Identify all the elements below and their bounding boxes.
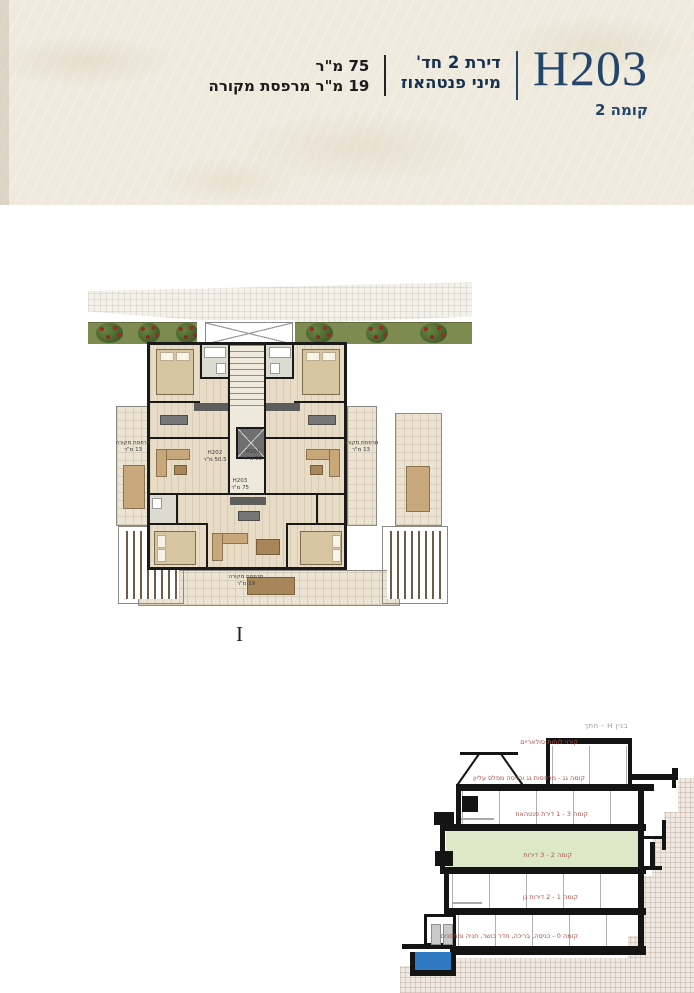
parapet-right xyxy=(672,768,676,788)
unit-code: H203 xyxy=(533,44,648,92)
unit-label-h201: H201 50 מ"ר xyxy=(238,449,268,462)
kitchen-counter xyxy=(194,403,228,411)
label-floor-2: קומה 2 - 3 דירות xyxy=(523,851,572,859)
unit-block: H203 קומה 2 xyxy=(533,44,648,119)
unit-area-text: 75 מ"ר xyxy=(225,485,255,492)
bed xyxy=(300,531,342,565)
unit-code-text: H201 xyxy=(238,449,268,456)
pool xyxy=(410,952,456,976)
toilet xyxy=(216,363,226,374)
pillow xyxy=(332,549,341,562)
paper-edge-shadow xyxy=(0,0,9,205)
building-section: בנין H - חתך קירוי לוחות סולאריים קומה ג… xyxy=(400,718,694,993)
floor-slab xyxy=(444,908,646,915)
balcony-label-left: מרפסת מקורה 13 מ"ר xyxy=(114,440,152,453)
balcony-label-line: 13 מ"ר xyxy=(342,447,380,454)
shrub-icon xyxy=(306,323,333,343)
label-floor-1: קומה 1 - 2 דירות גן xyxy=(523,893,578,901)
toilet xyxy=(270,363,280,374)
sofa xyxy=(156,449,167,477)
title-band: H203 קומה 2 דירת 2 חד' מיני פנטהאוז 75 מ… xyxy=(0,0,694,205)
cut-mass xyxy=(462,796,478,812)
kitchen-counter xyxy=(230,497,266,505)
unit-area-text: 50 מ"ר xyxy=(238,456,268,463)
bathroom xyxy=(266,345,292,377)
header-divider-dark xyxy=(384,55,386,96)
wall xyxy=(266,437,344,439)
pillow xyxy=(157,549,166,562)
railing xyxy=(452,902,482,904)
apartment-type-line1: דירת 2 חד' xyxy=(401,53,501,73)
pool-room xyxy=(424,914,456,946)
apartment-type-line2: מיני פנטהאוז xyxy=(401,73,501,93)
size-line1: 75 מ"ר xyxy=(209,57,370,77)
label-solar-roof: קירוי לוחות סולאריים xyxy=(520,738,578,746)
unit-label-h203: H203 75 מ"ר xyxy=(225,478,255,491)
unit-area-text: 50.5 מ"ר xyxy=(200,457,230,464)
kitchen-island xyxy=(308,415,336,425)
pillow xyxy=(157,535,166,548)
bathtub xyxy=(204,347,226,358)
pillow xyxy=(306,352,320,361)
bed xyxy=(156,349,194,395)
wall xyxy=(628,744,632,788)
coffee-table xyxy=(310,465,323,475)
unit-code-text: H203 xyxy=(225,478,255,485)
bathroom xyxy=(150,495,176,523)
wall xyxy=(150,523,208,525)
balcony-label-right: מרפסת מקורה 13 מ"ר xyxy=(342,440,380,453)
interior-lines xyxy=(458,915,636,946)
shrub-icon xyxy=(138,323,160,343)
ground-slab xyxy=(450,946,646,955)
pillow xyxy=(322,352,336,361)
cut-mass xyxy=(434,812,454,825)
wall xyxy=(206,525,208,567)
wall xyxy=(176,495,178,525)
cut-mass xyxy=(435,851,453,866)
size-line2: 19 מ"ר מרפסת מקורה xyxy=(209,77,370,97)
wall xyxy=(316,495,318,525)
bed xyxy=(154,531,196,565)
sofa xyxy=(212,533,223,561)
shrub-icon xyxy=(366,323,388,343)
shrub-icon xyxy=(176,323,198,343)
lounge-chair xyxy=(123,465,145,509)
kitchen-island xyxy=(238,511,260,521)
step-slab xyxy=(644,866,662,870)
balcony-label-line: 19 מ"ר xyxy=(216,581,276,588)
pergola-right xyxy=(382,526,448,604)
balcony-right xyxy=(347,406,377,526)
floor-label: קומה 2 xyxy=(595,101,648,119)
pillow xyxy=(332,535,341,548)
bathtub xyxy=(269,347,291,358)
wall xyxy=(286,523,344,525)
kitchen-island xyxy=(160,415,188,425)
wall xyxy=(456,784,461,831)
section-title: בנין H - חתך xyxy=(584,722,628,730)
kitchen-counter xyxy=(266,403,300,411)
balcony-label-line: מרפסת מקורה xyxy=(114,440,152,447)
balcony-label-line: מרפסת מקורה xyxy=(216,574,276,581)
apartment-sizes: 75 מ"ר 19 מ"ר מרפסת מקורה xyxy=(209,57,370,97)
lounge-chair xyxy=(406,466,430,512)
wall xyxy=(150,493,344,495)
coffee-table xyxy=(174,465,187,475)
shrub-icon xyxy=(96,323,123,343)
unit-label-h202: H202 50.5 מ"ר xyxy=(200,450,230,463)
balcony-label-line: מרפסת מקורה xyxy=(342,440,380,447)
toilet xyxy=(152,498,162,509)
floor-plan: H202 50.5 מ"ר H201 50 מ"ר H203 75 מ"ר מר… xyxy=(88,278,472,612)
dining-table xyxy=(256,539,280,555)
step-wall xyxy=(662,820,666,850)
label-floor-3: קומה 3 - 1 דירת פנטהאוז xyxy=(516,810,588,818)
balcony-label-line: 13 מ"ר xyxy=(114,447,152,454)
bathroom xyxy=(202,345,228,377)
wall xyxy=(150,401,200,403)
pillow xyxy=(176,352,190,361)
sofa xyxy=(329,449,340,477)
step-slab xyxy=(644,836,666,839)
terrace-far-right xyxy=(395,413,442,526)
wall xyxy=(294,401,344,403)
section-cut-marker: I xyxy=(236,622,243,647)
balcony-label-bottom: מרפסת מקורה 19 מ"ר xyxy=(216,574,276,587)
roof-slab xyxy=(456,784,654,791)
wall xyxy=(200,377,228,379)
solar-canopy xyxy=(460,752,518,755)
wall xyxy=(444,867,449,915)
label-roof-floor: קומה גג - מרפסות גג וכניסה מפלס עליון xyxy=(473,774,585,782)
stone-path xyxy=(88,282,472,324)
label-floor-0: קומה 0 - כניסה, בריכה, חדר כושר, חניה ומ… xyxy=(441,932,578,940)
wall xyxy=(266,377,294,379)
highlighted-floor xyxy=(446,831,638,867)
railing xyxy=(460,818,494,820)
pillow xyxy=(160,352,174,361)
header-content: H203 קומה 2 דירת 2 חד' מיני פנטהאוז 75 מ… xyxy=(209,44,648,119)
wall xyxy=(292,345,294,379)
wall xyxy=(150,437,228,439)
floor-slab xyxy=(440,867,646,874)
header-divider-navy xyxy=(516,51,518,100)
stairs xyxy=(230,345,264,409)
shrub-icon xyxy=(420,323,447,343)
floor-slab xyxy=(442,824,646,831)
bed xyxy=(302,349,340,395)
door xyxy=(431,924,441,945)
apartment-type: דירת 2 חד' מיני פנטהאוז xyxy=(401,53,501,93)
wall xyxy=(286,525,288,567)
unit-code-text: H202 xyxy=(200,450,230,457)
